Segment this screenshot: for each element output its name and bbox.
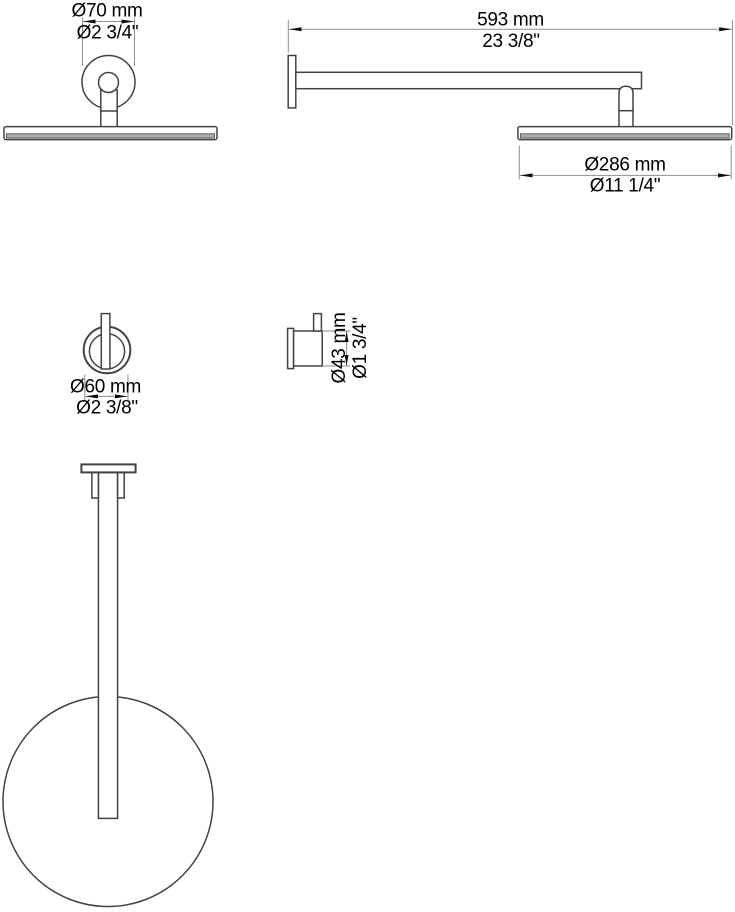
spray-face-band <box>7 134 215 138</box>
dim-label-mm: Ø70 mm <box>71 1 142 22</box>
pipe-connection-circle <box>99 73 119 93</box>
mount-body <box>294 331 323 366</box>
dim-label-mm: Ø286 mm <box>584 155 665 176</box>
mount-pipe <box>101 314 110 369</box>
drop-pipe <box>98 472 117 818</box>
arrowhead-right <box>718 173 731 177</box>
view-mount-front: Ø60 mm Ø2 3/8" <box>70 314 141 419</box>
wall-flange <box>288 56 296 108</box>
supply-pipe <box>101 90 117 127</box>
spray-face-band <box>520 134 729 138</box>
arrowhead-left <box>520 173 533 177</box>
dim-label-inch: Ø2 3/8" <box>76 398 138 419</box>
dim-label-mm: Ø43 mm <box>329 312 350 383</box>
mount-flange-plate <box>288 328 294 368</box>
view-ceiling-head-side: Ø70 mm Ø2 3/4" <box>4 1 217 140</box>
view-mount-side: Ø43 mm Ø1 3/4" <box>288 312 372 383</box>
ceiling-flange-plate <box>81 464 135 472</box>
mount-pipe-stub <box>314 314 322 331</box>
collar-left <box>92 472 99 498</box>
head-connector <box>619 86 633 126</box>
view-ceiling-shower-front <box>3 464 213 906</box>
drawing-canvas: Ø70 mm Ø2 3/4" 593 mm 23 3/8" Ø286 mm Ø1… <box>0 0 735 912</box>
view-wall-arm-side: 593 mm 23 3/8" Ø286 mm Ø11 1/4" <box>288 10 732 197</box>
arrowhead-right <box>719 27 732 31</box>
dim-label-inch: 23 3/8" <box>482 31 539 52</box>
dim-label-inch: Ø1 3/4" <box>350 317 371 379</box>
collar-right <box>118 472 125 498</box>
dim-label-inch: Ø2 3/4" <box>77 23 139 44</box>
technical-drawing: Ø70 mm Ø2 3/4" 593 mm 23 3/8" Ø286 mm Ø1… <box>0 0 735 912</box>
shower-arm <box>296 72 642 88</box>
dim-label-mm: 593 mm <box>477 10 544 31</box>
dim-label-inch: Ø11 1/4" <box>590 176 661 197</box>
arrowhead-left <box>289 27 302 31</box>
dim-label-mm: Ø60 mm <box>70 377 141 398</box>
